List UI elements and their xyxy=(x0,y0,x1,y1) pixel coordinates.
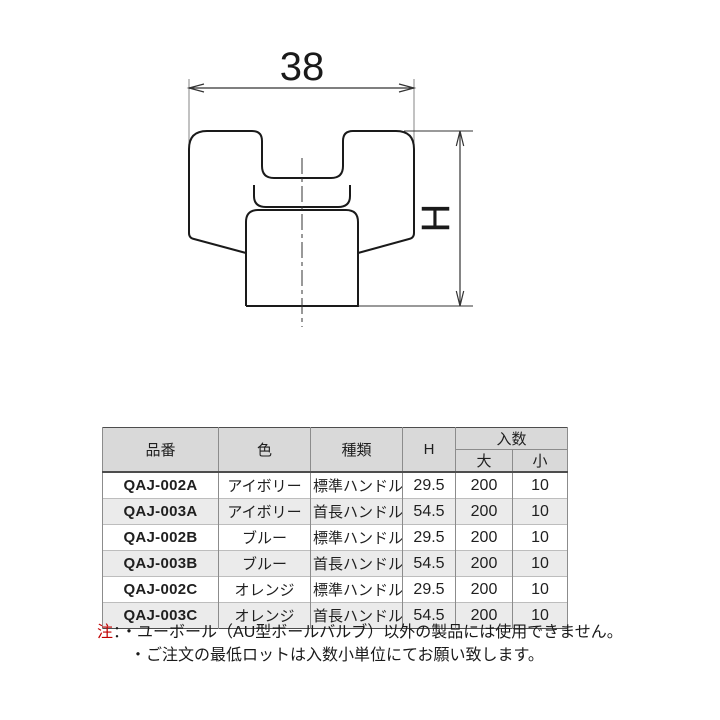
cell-h: 29.5 xyxy=(403,472,456,499)
header-part-no: 品番 xyxy=(103,428,219,473)
cell-qty-large: 200 xyxy=(456,499,513,525)
note-text-2: ・ご注文の最低ロットは入数小単位にてお願い致します。 xyxy=(97,644,623,667)
note-label: 注 xyxy=(97,624,113,641)
cell-qty-small: 10 xyxy=(513,525,568,551)
cell-color: ブルー xyxy=(219,525,311,551)
cell-h: 29.5 xyxy=(403,577,456,603)
width-dimension-label: 38 xyxy=(280,45,325,89)
cell-h: 54.5 xyxy=(403,551,456,577)
cell-part-no: QAJ-003B xyxy=(103,551,219,577)
spec-table: 品番 色 種類 H 入数 大 小 QAJ-002A アイボリー 標準ハンドル 2… xyxy=(102,427,568,629)
cell-qty-large: 200 xyxy=(456,525,513,551)
note-line-1: 注：・ユーボール（AU型ボールバルブ）以外の製品には使用できません。 xyxy=(97,621,623,644)
header-quantity-large: 大 xyxy=(456,450,513,473)
cell-h: 29.5 xyxy=(403,525,456,551)
cell-color: アイボリー xyxy=(219,499,311,525)
cell-qty-large: 200 xyxy=(456,472,513,499)
cell-h: 54.5 xyxy=(403,499,456,525)
cell-type: 標準ハンドル xyxy=(311,577,403,603)
cell-qty-large: 200 xyxy=(456,551,513,577)
table-row: QAJ-003B ブルー 首長ハンドル 54.5 200 10 xyxy=(103,551,568,577)
cell-qty-small: 10 xyxy=(513,551,568,577)
cell-type: 標準ハンドル xyxy=(311,472,403,499)
header-color: 色 xyxy=(219,428,311,473)
header-quantity: 入数 xyxy=(456,428,568,450)
cell-part-no: QAJ-002B xyxy=(103,525,219,551)
spec-table-header: 品番 色 種類 H 入数 大 小 xyxy=(103,428,568,473)
cell-part-no: QAJ-002A xyxy=(103,472,219,499)
cell-qty-small: 10 xyxy=(513,577,568,603)
cell-qty-large: 200 xyxy=(456,577,513,603)
cell-color: アイボリー xyxy=(219,472,311,499)
cell-color: ブルー xyxy=(219,551,311,577)
cell-part-no: QAJ-002C xyxy=(103,577,219,603)
cell-part-no: QAJ-003A xyxy=(103,499,219,525)
note-line-2: ・ご注文の最低ロットは入数小単位にてお願い致します。 xyxy=(97,644,623,667)
header-quantity-small: 小 xyxy=(513,450,568,473)
cell-qty-small: 10 xyxy=(513,499,568,525)
cell-qty-small: 10 xyxy=(513,472,568,499)
cell-type: 首長ハンドル xyxy=(311,551,403,577)
note-text-1: ・ユーボール（AU型ボールバルブ）以外の製品には使用できません。 xyxy=(121,624,623,641)
note-colon: ： xyxy=(113,624,121,641)
cell-color: オレンジ xyxy=(219,577,311,603)
notes: 注：・ユーボール（AU型ボールバルブ）以外の製品には使用できません。 ・ご注文の… xyxy=(97,621,623,667)
cell-type: 首長ハンドル xyxy=(311,499,403,525)
header-type: 種類 xyxy=(311,428,403,473)
table-row: QAJ-002A アイボリー 標準ハンドル 29.5 200 10 xyxy=(103,472,568,499)
height-dimension-label: H xyxy=(414,204,458,233)
table-row: QAJ-002C オレンジ 標準ハンドル 29.5 200 10 xyxy=(103,577,568,603)
catalog-page: 38 H xyxy=(0,0,720,720)
technical-drawing: 38 H xyxy=(0,0,720,410)
cell-type: 標準ハンドル xyxy=(311,525,403,551)
table-row: QAJ-003A アイボリー 首長ハンドル 54.5 200 10 xyxy=(103,499,568,525)
header-h: H xyxy=(403,428,456,473)
table-row: QAJ-002B ブルー 標準ハンドル 29.5 200 10 xyxy=(103,525,568,551)
